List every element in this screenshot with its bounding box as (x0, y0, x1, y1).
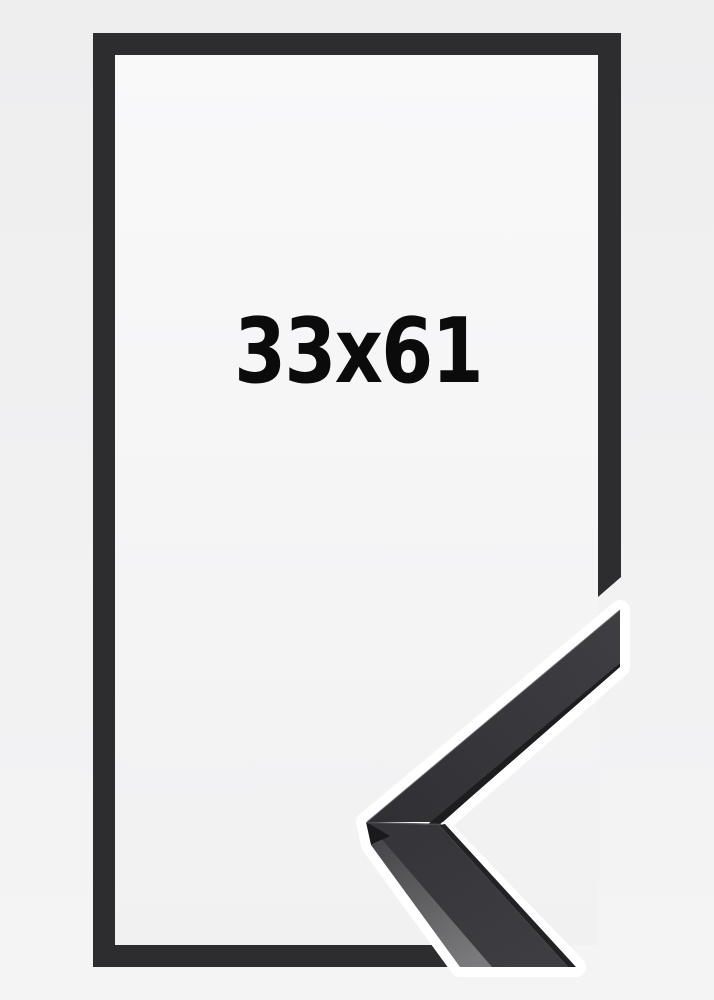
frame-mockup-graphic (0, 0, 714, 1000)
frame-interior (115, 55, 598, 945)
product-image: 33x61 (0, 0, 714, 1000)
frame-size-label: 33x61 (234, 307, 482, 397)
